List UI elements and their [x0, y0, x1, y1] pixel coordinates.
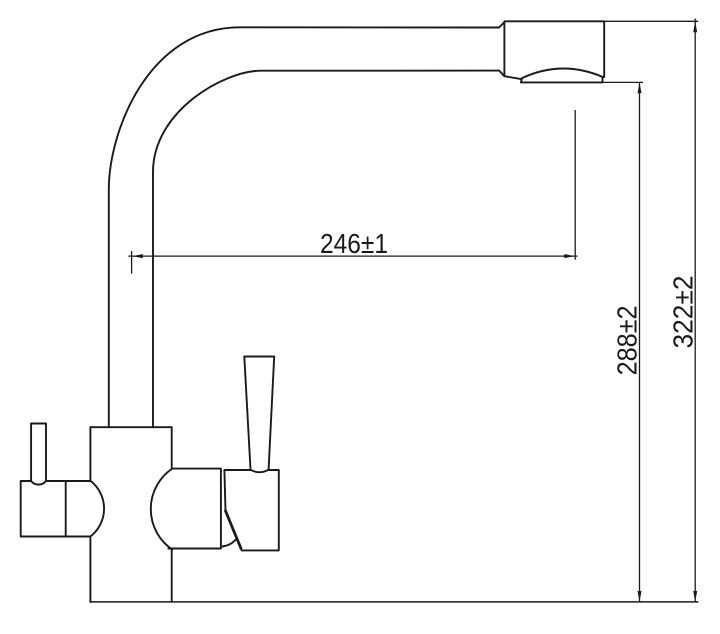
svg-text:322±2: 322±2: [668, 276, 699, 349]
svg-text:288±2: 288±2: [612, 305, 643, 375]
svg-text:246±1: 246±1: [320, 228, 388, 259]
